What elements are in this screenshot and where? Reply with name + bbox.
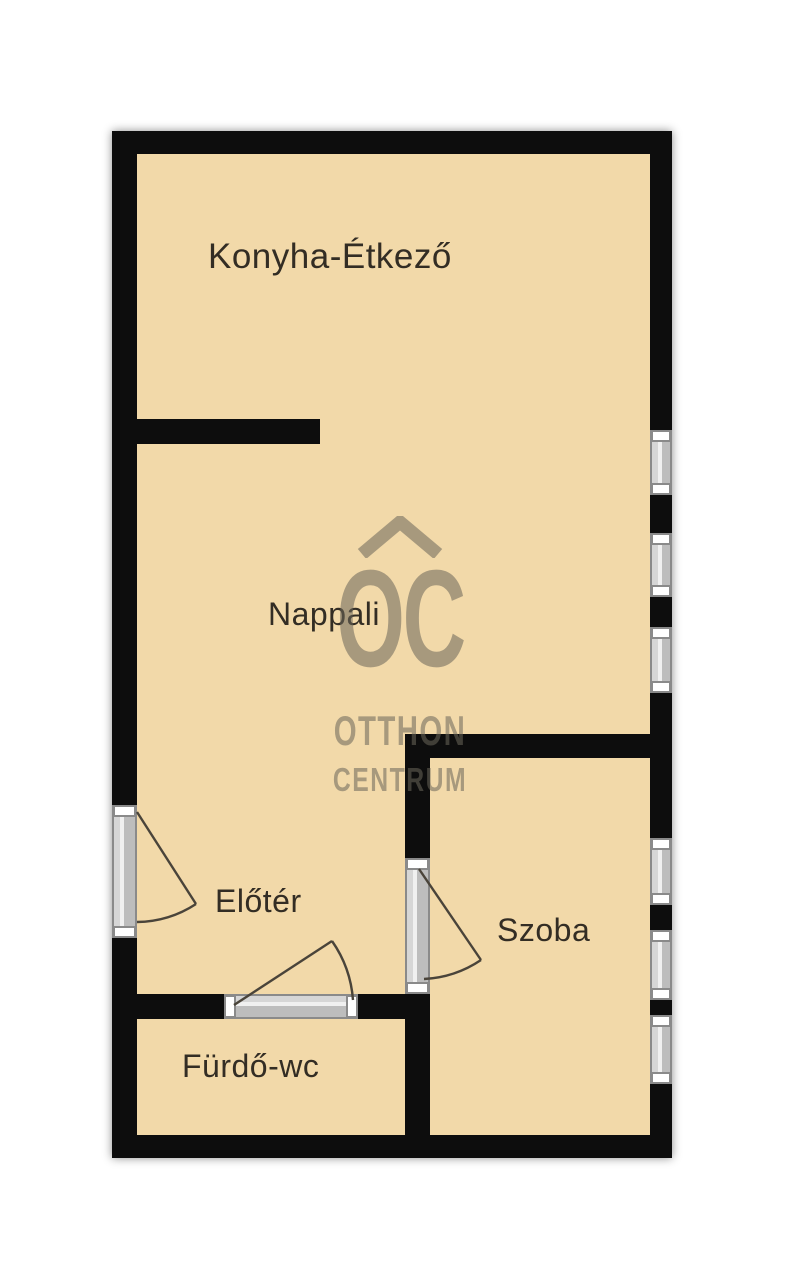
wall-right-seg3 bbox=[650, 597, 672, 627]
wall-eloter-szoba-upper bbox=[405, 734, 430, 858]
wall-nappali-szoba bbox=[405, 734, 672, 758]
furdo-door-threshold bbox=[224, 994, 358, 1019]
window-cap-icon bbox=[651, 988, 671, 1000]
window-cap-icon bbox=[346, 995, 358, 1018]
window-icon bbox=[650, 627, 672, 693]
window-cap-icon bbox=[651, 627, 671, 639]
wall-eloter-furdo-left bbox=[112, 994, 224, 1019]
window-icon bbox=[650, 1015, 672, 1084]
wall-right-seg7 bbox=[650, 1084, 672, 1158]
wall-bottom bbox=[112, 1135, 672, 1158]
watermark-line2: CENTRUM bbox=[295, 763, 505, 796]
room-label-szoba: Szoba bbox=[497, 912, 590, 949]
window-cap-icon bbox=[224, 995, 236, 1018]
wall-kitchen-stub bbox=[131, 419, 320, 444]
window-icon bbox=[650, 430, 672, 495]
entry-door-threshold bbox=[112, 805, 137, 938]
window-cap-icon bbox=[651, 681, 671, 693]
room-label-eloter: Előtér bbox=[215, 883, 302, 920]
room-label-nappali: Nappali bbox=[268, 596, 380, 633]
wall-left-lower bbox=[112, 938, 137, 1158]
wall-right-seg6 bbox=[650, 1000, 672, 1015]
wall-eloter-furdo-right bbox=[358, 994, 430, 1019]
wall-left-upper bbox=[112, 131, 137, 805]
window-cap-icon bbox=[651, 930, 671, 942]
floor-plan: Konyha-Étkező Nappali Előtér Szoba Fürdő… bbox=[112, 131, 672, 1158]
window-cap-icon bbox=[113, 805, 136, 817]
wall-right-seg4 bbox=[650, 693, 672, 838]
room-label-furdo-wc: Fürdő-wc bbox=[182, 1048, 319, 1085]
wall-right-seg5 bbox=[650, 905, 672, 930]
window-cap-icon bbox=[651, 430, 671, 442]
window-cap-icon bbox=[406, 982, 429, 994]
roof-chevron-icon bbox=[355, 516, 445, 558]
wall-right-seg2 bbox=[650, 495, 672, 533]
window-cap-icon bbox=[651, 483, 671, 495]
szoba-door-threshold bbox=[405, 858, 430, 994]
window-icon bbox=[650, 838, 672, 905]
wall-top bbox=[112, 131, 672, 154]
window-cap-icon bbox=[651, 838, 671, 850]
entry-door-icon bbox=[137, 812, 196, 922]
window-cap-icon bbox=[651, 585, 671, 597]
window-cap-icon bbox=[113, 926, 136, 938]
window-cap-icon bbox=[651, 893, 671, 905]
window-cap-icon bbox=[651, 1072, 671, 1084]
window-icon bbox=[650, 533, 672, 597]
wall-right-seg1 bbox=[650, 131, 672, 430]
window-cap-icon bbox=[651, 1015, 671, 1027]
window-cap-icon bbox=[406, 858, 429, 870]
window-icon bbox=[650, 930, 672, 1000]
room-label-konyha-etkezo: Konyha-Étkező bbox=[208, 237, 452, 277]
window-cap-icon bbox=[651, 533, 671, 545]
